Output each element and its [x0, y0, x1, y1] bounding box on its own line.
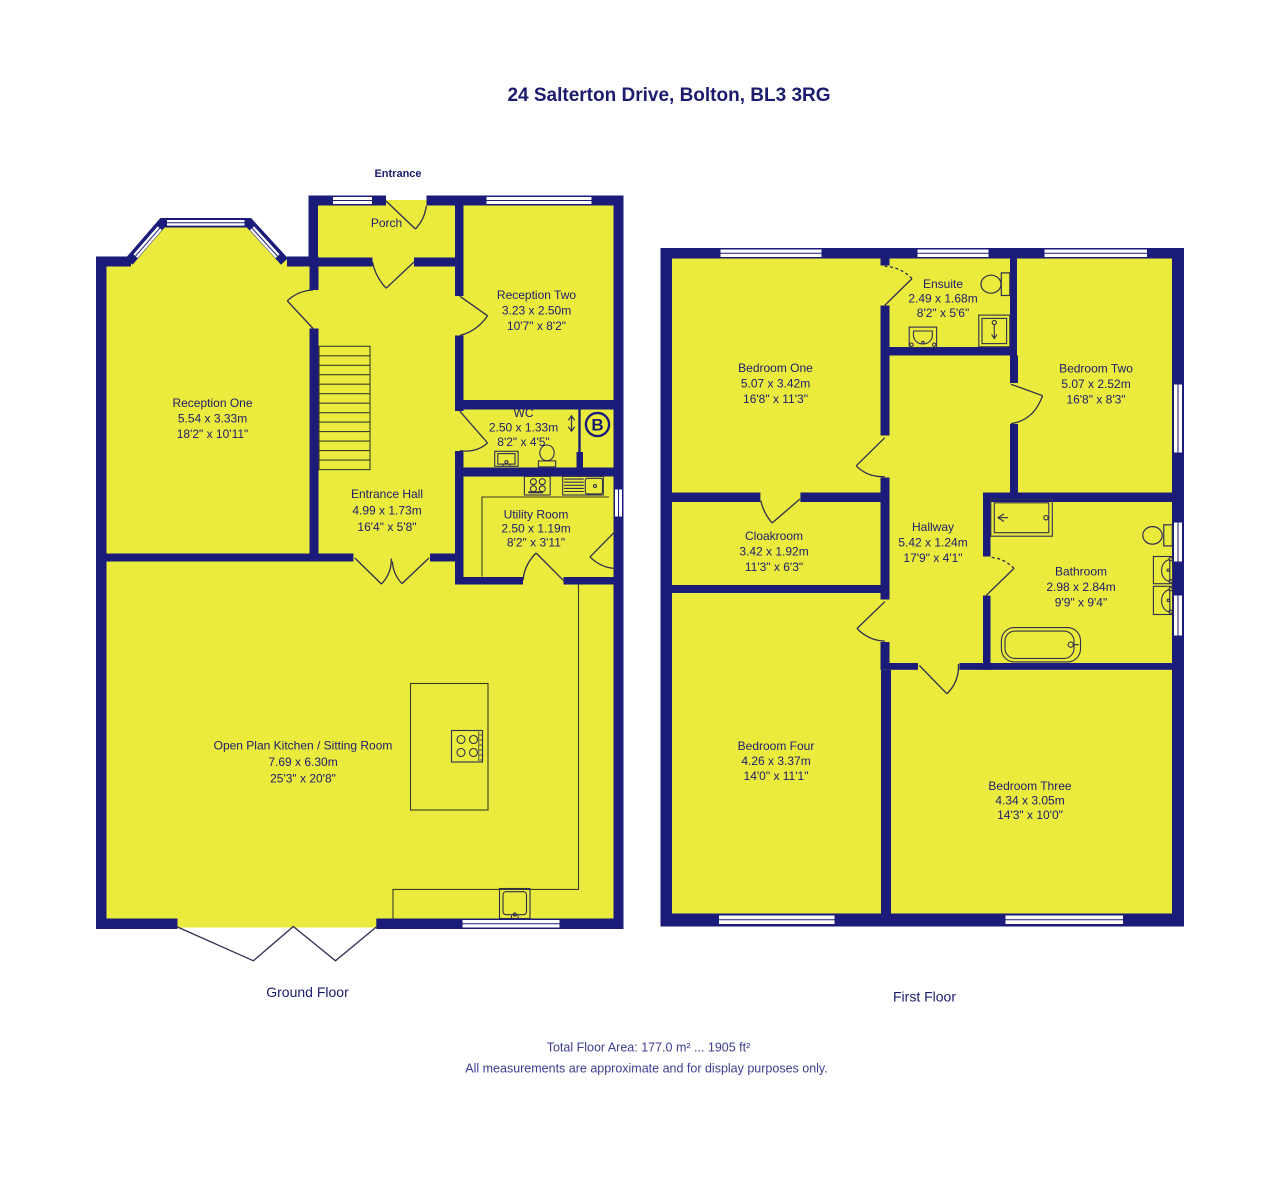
svg-text:Entrance: Entrance — [374, 168, 421, 180]
svg-text:Total Floor Area: 177.0 m² ...: Total Floor Area: 177.0 m² ... 1905 ft² — [547, 1041, 751, 1055]
svg-text:Cloakroom3.42 x 1.92m11'3" x 6: Cloakroom3.42 x 1.92m11'3" x 6'3" — [739, 529, 808, 574]
svg-text:All measurements are approxima: All measurements are approximate and for… — [465, 1062, 827, 1076]
svg-text:First Floor: First Floor — [893, 989, 956, 1005]
svg-text:Reception One5.54 x 3.33m18'2": Reception One5.54 x 3.33m18'2" x 10'11" — [172, 396, 252, 441]
svg-text:Bedroom Four4.26 x 3.37m14'0": Bedroom Four4.26 x 3.37m14'0" x 11'1" — [738, 739, 815, 783]
svg-text:Entrance Hall4.99 x 1.73m16'4": Entrance Hall4.99 x 1.73m16'4" x 5'8" — [351, 487, 423, 534]
svg-text:Bedroom Three4.34 x 3.05m14'3": Bedroom Three4.34 x 3.05m14'3" x 10'0" — [988, 779, 1071, 822]
svg-text:Bedroom Two5.07 x 2.52m16'8" x: Bedroom Two5.07 x 2.52m16'8" x 8'3" — [1059, 362, 1133, 407]
svg-text:Reception Two3.23 x 2.50m10'7": Reception Two3.23 x 2.50m10'7" x 8'2" — [497, 288, 576, 333]
svg-text:Bathroom2.98 x 2.84m9'9" x 9'4: Bathroom2.98 x 2.84m9'9" x 9'4" — [1046, 565, 1115, 610]
svg-text:Ground Floor: Ground Floor — [266, 984, 349, 1000]
svg-text:Bedroom One5.07 x 3.42m16'8" x: Bedroom One5.07 x 3.42m16'8" x 11'3" — [738, 361, 813, 406]
svg-text:B: B — [591, 416, 603, 435]
svg-text:24 Salterton Drive, Bolton, BL: 24 Salterton Drive, Bolton, BL3 3RG — [507, 85, 830, 106]
svg-text:Porch: Porch — [371, 216, 402, 230]
svg-text:Utility Room2.50 x 1.19m8'2" x: Utility Room2.50 x 1.19m8'2" x 3'11" — [501, 508, 570, 550]
